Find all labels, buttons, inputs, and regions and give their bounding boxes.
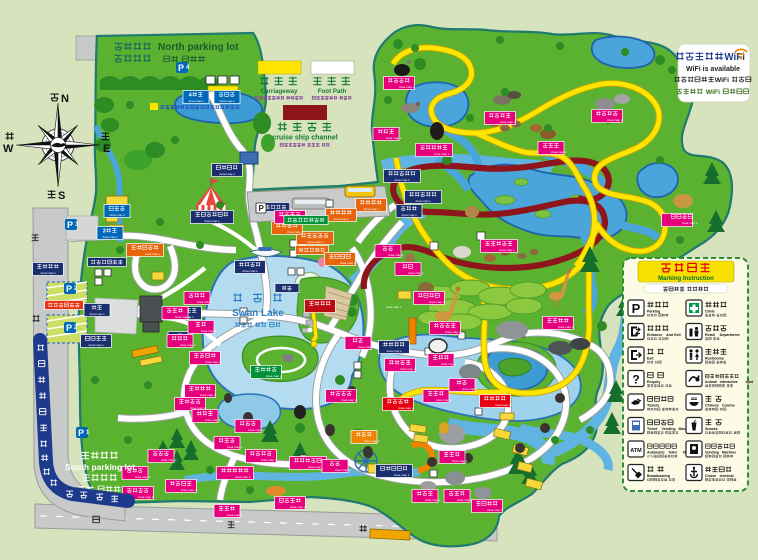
svg-text:Carriageway: Carriageway: [261, 88, 298, 95]
svg-text:Area map s: Area map s: [400, 367, 416, 371]
svg-text:Cuisine: Cuisine: [722, 404, 735, 408]
svg-text:Area map s: Area map s: [161, 458, 177, 462]
svg-text:Area map s: Area map s: [415, 199, 431, 203]
svg-text:Area map s: Area map s: [145, 252, 161, 256]
svg-text:N: N: [61, 93, 69, 105]
svg-text:Area map s: Area map s: [188, 99, 204, 103]
svg-text:Broadcasting: Broadcasting: [647, 474, 670, 478]
svg-text:Area map s: Area map s: [495, 403, 511, 407]
svg-text:Area map s: Area map s: [308, 465, 324, 469]
svg-text:S: S: [58, 190, 65, 202]
svg-text:Area map s: Area map s: [386, 349, 402, 353]
svg-text:P: P: [67, 220, 73, 230]
svg-text:Area map s: Area map s: [434, 152, 450, 156]
svg-text:Area map s: Area map s: [487, 508, 503, 512]
svg-text:Area map s: Area map s: [363, 207, 379, 211]
svg-text:Area map s: Area map s: [386, 305, 402, 309]
svg-text:Area map s: Area map s: [425, 498, 441, 502]
svg-text:Area map s: Area map s: [445, 330, 461, 334]
svg-text:Swan Lake: Swan Lake: [232, 308, 284, 319]
svg-text:Area map s: Area map s: [401, 213, 417, 217]
svg-text:Area map s: Area map s: [40, 271, 56, 275]
svg-text:Area map s: Area map s: [235, 475, 251, 479]
svg-text:Chinese: Chinese: [705, 404, 719, 408]
svg-text:Retail: Retail: [705, 333, 715, 337]
svg-text:Clinic: Clinic: [705, 310, 715, 314]
svg-text:Ticket: Ticket: [647, 427, 658, 431]
svg-text:Area map s: Area map s: [219, 99, 235, 103]
svg-text:Area map s: Area map s: [386, 136, 402, 140]
svg-text:P: P: [66, 284, 72, 294]
svg-text:Area map s: Area map s: [333, 217, 349, 221]
svg-text:E: E: [103, 143, 110, 155]
svg-text:Area map s: Area map s: [205, 418, 221, 422]
svg-text:?: ?: [632, 373, 639, 387]
svg-text:Area map s: Area map s: [441, 362, 457, 366]
svg-text:P: P: [66, 323, 72, 333]
svg-text:Area map s: Area map s: [341, 398, 357, 402]
svg-text:Area map s: Area map s: [340, 261, 356, 265]
svg-text:Area map s: Area map s: [261, 458, 277, 462]
svg-text:Snacks: Snacks: [705, 427, 718, 431]
svg-text:Area map s: Area map s: [88, 343, 104, 347]
svg-text:Area map s: Area map s: [205, 360, 221, 364]
svg-text:Area map s: Area map s: [335, 468, 351, 472]
svg-text:P: P: [259, 204, 265, 213]
svg-text:Tickets: Tickets: [647, 404, 659, 408]
svg-text:Area map s: Area map s: [180, 343, 196, 347]
svg-text:terminal: terminal: [720, 474, 734, 478]
svg-text:Area map s: Area map s: [287, 230, 303, 234]
svg-text:Area map s: Area map s: [181, 488, 197, 492]
svg-text:Area map s: Area map s: [394, 473, 410, 477]
svg-text:Exit: Exit: [647, 357, 654, 361]
svg-text:Area map s: Area map s: [499, 248, 515, 252]
svg-text:cruise ship channel: cruise ship channel: [272, 135, 337, 142]
svg-text:Area map s: Area map s: [394, 178, 410, 182]
svg-text:Area map s: Area map s: [204, 219, 220, 223]
svg-text:Area map s: Area map s: [227, 513, 243, 517]
svg-text:Foot Path: Foot Path: [318, 88, 347, 95]
svg-text:Area map s: Area map s: [266, 374, 282, 378]
svg-text:Area map s: Area map s: [364, 439, 380, 443]
svg-text:Area map s: Area map s: [607, 118, 623, 122]
svg-text:Marking Instruction: Marking Instruction: [658, 276, 714, 282]
svg-text:Department: Department: [720, 333, 741, 337]
svg-text:Area map s: Area map s: [429, 300, 445, 304]
svg-text:Area map s: Area map s: [452, 459, 468, 463]
svg-text:Area map s: Area map s: [500, 120, 516, 124]
svg-text:Area map s: Area map s: [201, 329, 217, 333]
svg-text:Area map s: Area map s: [307, 240, 323, 244]
svg-text:Area map s: Area map s: [227, 445, 243, 449]
svg-text:W: W: [3, 143, 14, 155]
svg-text:spot: spot: [745, 380, 753, 384]
svg-text:Animal: Animal: [705, 380, 717, 384]
svg-text:Cruise: Cruise: [705, 474, 716, 478]
svg-text:Area map s: Area map s: [358, 345, 374, 349]
svg-text:Area map s: Area map s: [200, 393, 216, 397]
svg-text:Restrooms: Restrooms: [705, 357, 724, 361]
svg-text:Area map s: Area map s: [462, 387, 478, 391]
svg-text:Area map s: Area map s: [551, 150, 567, 154]
svg-text:Area map s: Area map s: [242, 269, 258, 273]
svg-text:Area map s: Area map s: [457, 498, 473, 502]
svg-text:Entrance: Entrance: [647, 333, 662, 337]
svg-text:WiFi: WiFi: [715, 77, 729, 84]
svg-text:Area map s: Area map s: [248, 428, 264, 432]
svg-text:ATM: ATM: [647, 455, 654, 459]
svg-text:And: And: [666, 333, 673, 337]
svg-text:WiFi is available: WiFi is available: [686, 66, 740, 73]
svg-text:Teller: Teller: [668, 451, 678, 455]
svg-text:Area map s: Area map s: [138, 495, 154, 499]
svg-text:Area map s: Area map s: [219, 172, 235, 176]
svg-text:Area map s: Area map s: [388, 253, 404, 257]
svg-text:ATM: ATM: [630, 448, 642, 454]
svg-text:North parking lot: North parking lot: [158, 42, 239, 53]
svg-text:Area map s: Area map s: [135, 475, 151, 479]
svg-text:P: P: [78, 428, 84, 438]
svg-text:Area map s: Area map s: [558, 325, 574, 329]
svg-text:Parking: Parking: [647, 310, 660, 314]
svg-text:South parking lot: South parking lot: [65, 462, 135, 472]
svg-text:Area map s: Area map s: [290, 505, 306, 509]
svg-text:P: P: [632, 301, 641, 316]
svg-text:Area map s: Area map s: [398, 406, 414, 410]
svg-text:Enquiry: Enquiry: [647, 380, 660, 384]
svg-text:Machine: Machine: [722, 451, 736, 455]
svg-text:WiFi: WiFi: [706, 89, 720, 96]
svg-text:P: P: [178, 63, 184, 73]
svg-text:Area map s: Area map s: [109, 213, 125, 217]
svg-text:Area map s: Area map s: [197, 300, 213, 304]
svg-text:Area map s: Area map s: [682, 221, 698, 225]
svg-text:Area map s: Area map s: [175, 315, 191, 319]
svg-text:Vending: Vending: [705, 451, 719, 455]
svg-text:Exit: Exit: [674, 333, 681, 337]
svg-text:Area map s: Area map s: [89, 312, 105, 316]
svg-text:Area map s: Area map s: [102, 235, 118, 239]
svg-text:Area map s: Area map s: [408, 271, 424, 275]
svg-text:3: 3: [103, 229, 106, 235]
svg-text:Interactive: Interactive: [720, 380, 738, 384]
svg-text:Vending: Vending: [662, 427, 676, 431]
svg-text:Area map s: Area map s: [436, 398, 452, 402]
svg-text:Area map s: Area map s: [399, 85, 415, 89]
